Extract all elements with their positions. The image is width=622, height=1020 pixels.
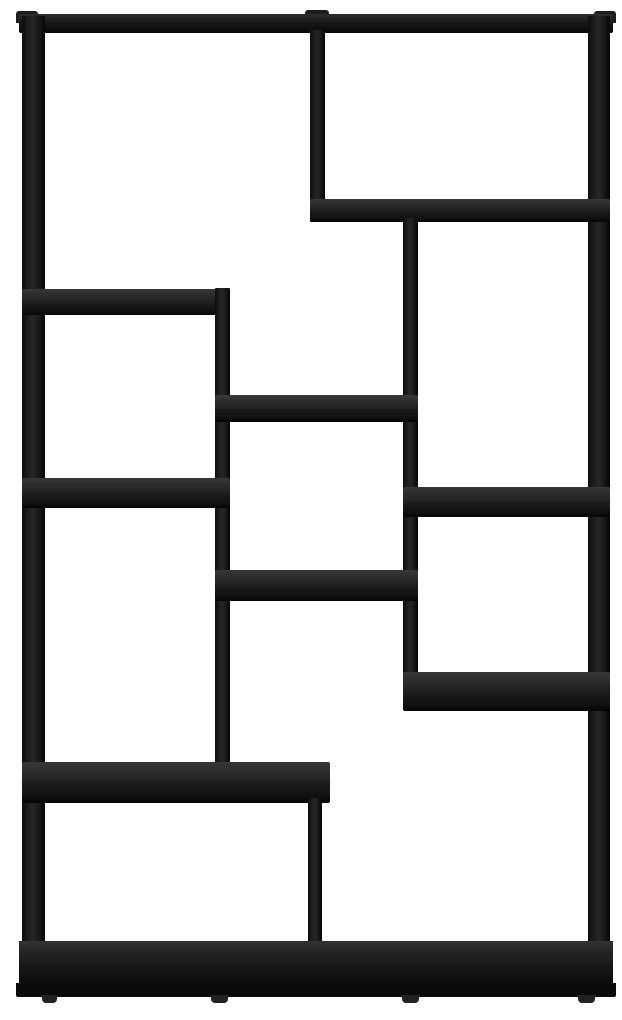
divider-bottom (308, 798, 322, 946)
shelf-top-right (310, 199, 610, 222)
foot-mid-left (211, 995, 228, 1003)
shelf-upper-left (22, 289, 230, 315)
divider-upper-middle (403, 218, 418, 676)
shelf-right-middle (403, 487, 610, 517)
base-plinth (16, 983, 616, 997)
product-photo (0, 0, 622, 1020)
bottom-frame-bar (19, 941, 613, 986)
divider-top (310, 30, 325, 222)
shelf-middle-upper (215, 395, 418, 422)
bookshelf (0, 0, 622, 1020)
shelf-middle-lower (215, 570, 418, 601)
foot-left (42, 995, 57, 1003)
shelf-right-lower (403, 672, 610, 711)
shelf-bottom-left-wide (22, 762, 330, 803)
foot-right (578, 995, 595, 1003)
divider-left-middle (215, 288, 230, 802)
shelf-left-lower (22, 478, 230, 508)
foot-mid-right (402, 995, 419, 1003)
